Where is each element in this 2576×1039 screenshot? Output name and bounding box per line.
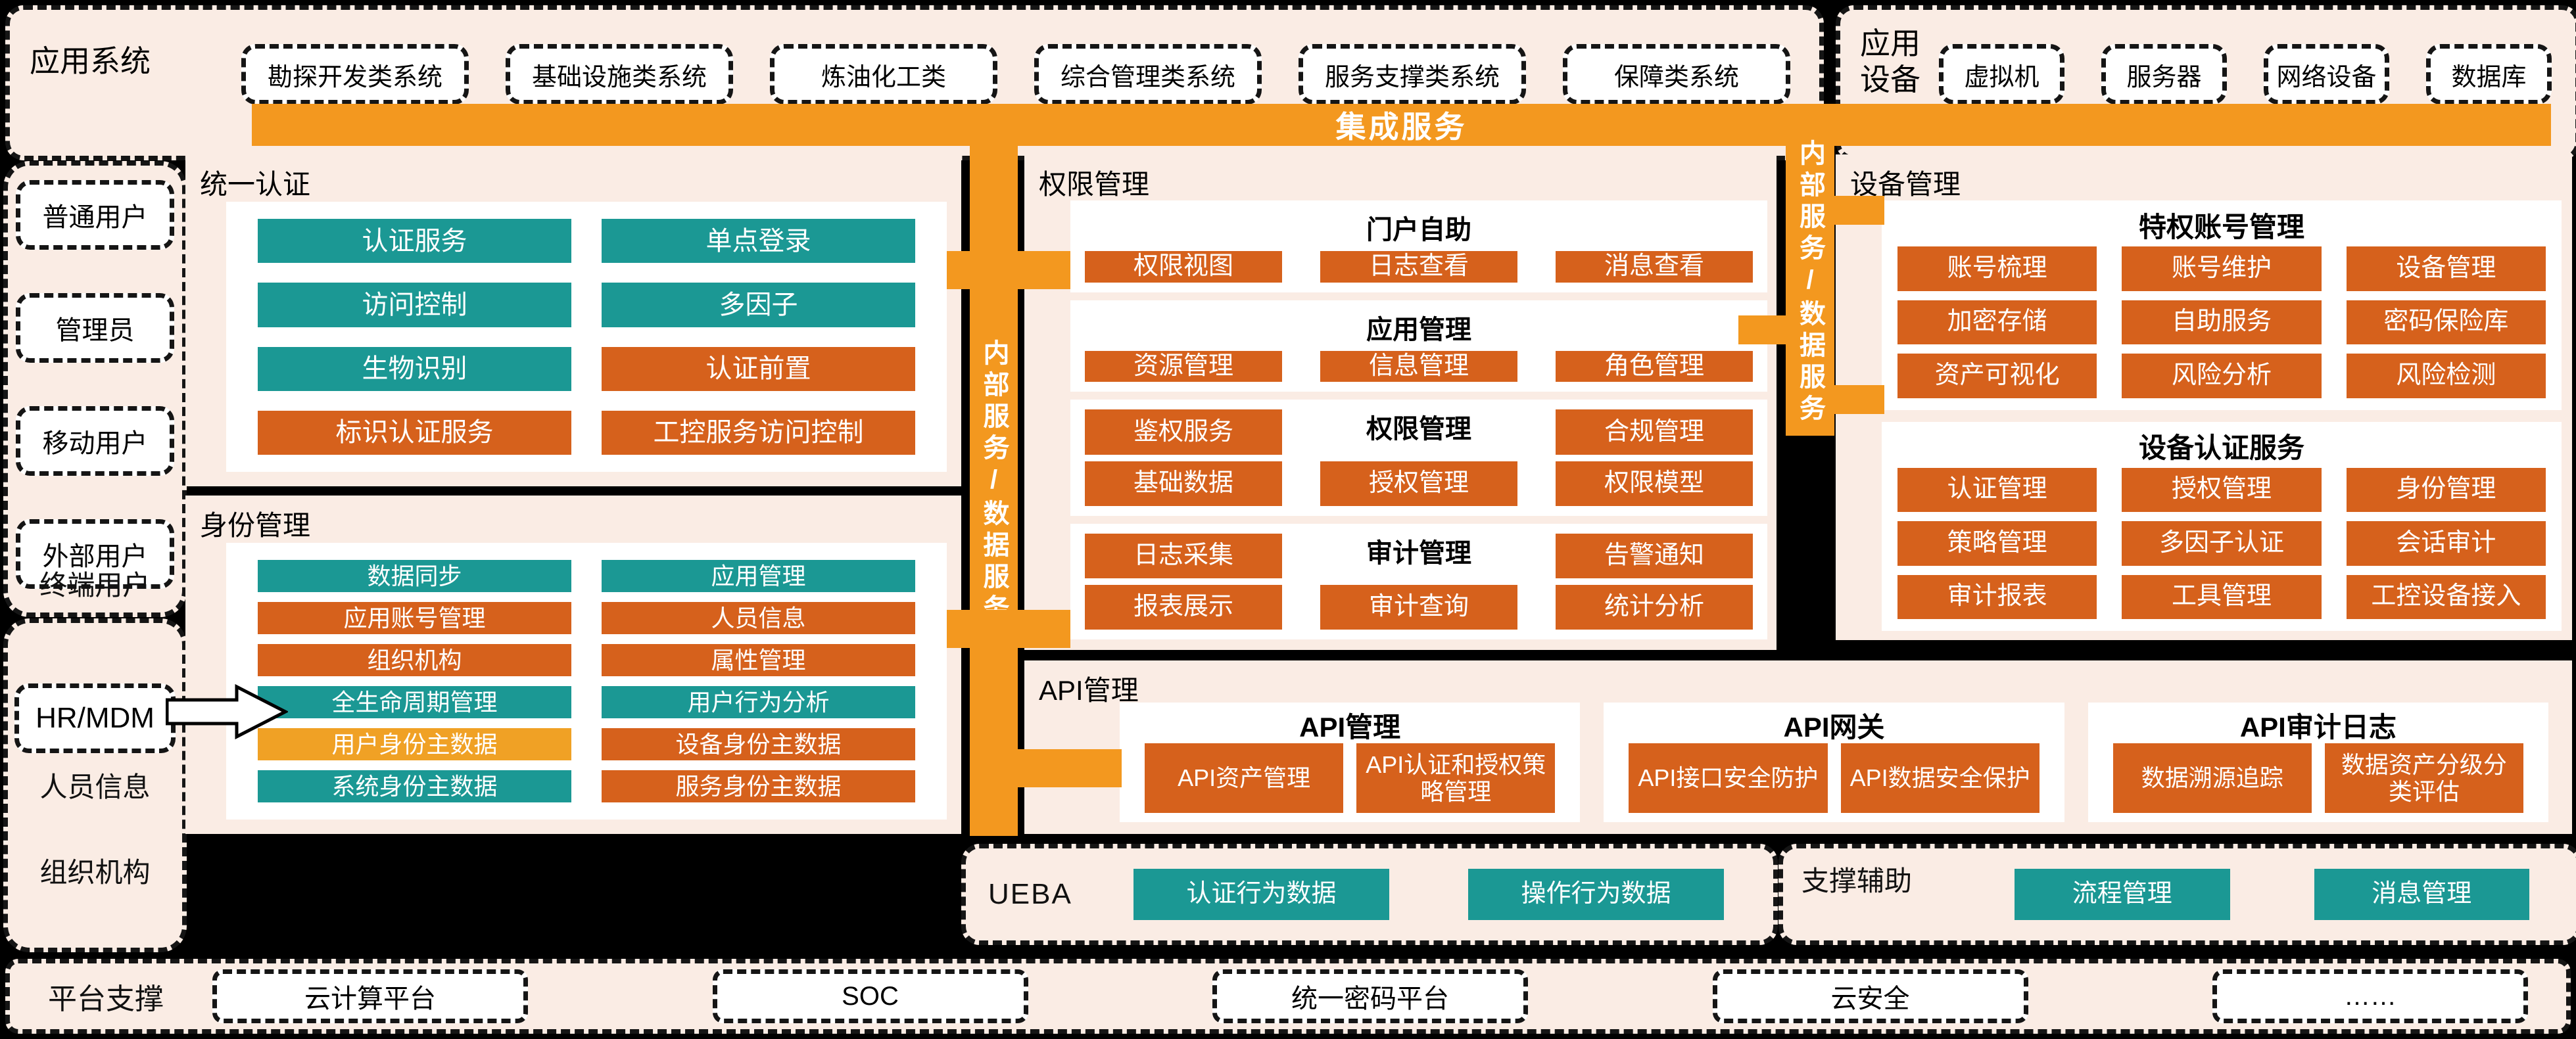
api-button: 数据溯源追踪 [2113,743,2312,813]
permission-button-row: 报表展示审计查询统计分析 [1085,582,1753,633]
api-button: API数据安全保护 [1841,743,2039,813]
permission-button: 告警通知 [1556,534,1753,578]
permission-panel-title-row: 应用管理 [1085,307,1753,348]
app-system-box: 基础设施类系统 [506,44,733,104]
permission-button-row: 资源管理信息管理角色管理 [1085,348,1753,386]
permission-button: 日志采集 [1085,534,1282,578]
internal-services-bar-right: 内部服务/数据服务 [1786,129,1834,436]
api-button: API接口安全防护 [1629,743,1827,813]
identity-button: 应用账号管理 [258,602,571,634]
identity-button: 应用管理 [602,560,915,592]
panel-title: 权限管理 [1320,409,1517,444]
identity-button: 组织机构 [258,644,571,676]
identity-button: 用户身份主数据 [258,728,571,760]
connector-api [1018,749,1122,787]
ueba-buttons: 认证行为数据操作行为数据 [1133,869,1724,920]
api-button: API资产管理 [1145,743,1343,813]
platform-box: 云安全 [1713,969,2028,1023]
platform-box: 统一密码平台 [1212,969,1528,1023]
app-devices-label: 应用设备 [1860,26,1939,98]
app-system-box: 综合管理类系统 [1034,44,1262,104]
section-ueba-title: UEBA [988,848,1072,940]
app-device-box: 虚拟机 [1939,44,2064,104]
identity-panel: 数据同步应用管理应用账号管理人员信息组织机构属性管理全生命周期管理用户行为分析用… [226,543,947,820]
support-aux-button: 消息管理 [2314,869,2530,920]
hr-mdm-group: HR/MDM 人员信息 组织机构 [3,618,187,952]
device-button: 授权管理 [2122,468,2321,513]
permission-button: 统计分析 [1556,585,1753,630]
identity-button: 人员信息 [602,602,915,634]
unified-auth-button: 多因子 [602,283,915,327]
device-button: 身份管理 [2347,468,2546,513]
api-panel: API审计日志数据溯源追踪数据资产分级分类评估 [2088,703,2548,822]
permission-panel: 鉴权服务权限管理合规管理基础数据授权管理权限模型 [1070,400,1767,515]
identity-button: 服务身份主数据 [602,770,915,802]
permission-button-row: 鉴权服务权限管理合规管理 [1085,406,1753,457]
permission-panels: 门户自助权限视图日志查看消息查看应用管理资源管理信息管理角色管理鉴权服务权限管理… [1070,200,1767,639]
identity-button: 数据同步 [258,560,571,592]
platform-box: 云计算平台 [212,969,528,1023]
identity-button: 设备身份主数据 [602,728,915,760]
permission-button: 审计查询 [1320,585,1517,630]
permission-button: 消息查看 [1556,251,1753,283]
identity-button: 全生命周期管理 [258,686,571,718]
app-device-box: 服务器 [2101,44,2227,104]
api-panel: API管理API资产管理API认证和授权策略管理 [1120,703,1580,822]
permission-panel: 应用管理资源管理信息管理角色管理 [1070,300,1767,392]
permission-button: 日志查看 [1320,251,1517,283]
section-permission: 权限管理 门户自助权限视图日志查看消息查看应用管理资源管理信息管理角色管理鉴权服… [1024,154,1777,650]
unified-auth-button: 认证前置 [602,347,915,391]
device-button: 工控设备接入 [2347,575,2546,620]
panel-title: 审计管理 [1320,534,1517,568]
app-system-box: 炼油化工类 [770,44,997,104]
internal-services-bar-left-label: 内部服务/数据服务 [981,339,1007,626]
connector-auth-permission [947,251,1070,289]
api-button: 数据资产分级分类评估 [2325,743,2523,813]
identity-button: 用户行为分析 [602,686,915,718]
section-support-aux: 支撑辅助 流程管理消息管理 [1778,844,2576,945]
permission-panel: 日志采集审计管理告警通知报表展示审计查询统计分析 [1070,524,1767,639]
api-button-row: API资产管理API认证和授权策略管理 [1145,743,1555,813]
permission-button: 信息管理 [1320,351,1517,382]
device-button: 账号梳理 [1897,246,2097,291]
api-button: API认证和授权策略管理 [1356,743,1555,813]
section-identity-title: 身份管理 [200,503,310,543]
panel-title: API审计日志 [2113,706,2523,743]
api-button-row: 数据溯源追踪数据资产分级分类评估 [2113,743,2523,813]
iam-architecture-diagram: 应用系统 勘探开发类系统基础设施类系统炼油化工类综合管理类系统服务支撑类系统保障… [0,0,2576,1039]
permission-panel-title-row: 门户自助 [1085,207,1753,248]
device-button: 密码保险库 [2347,300,2546,345]
terminal-users-items: 普通用户管理员移动用户外部用户 [16,180,174,589]
device-button: 账号维护 [2122,246,2321,291]
connector-permission-right [1738,315,1786,344]
device-button: 设备管理 [2347,246,2546,291]
permission-button: 鉴权服务 [1085,409,1282,454]
connector-device-top [1834,196,1884,225]
panel-title: 应用管理 [1320,310,1517,344]
unified-auth-button: 生物识别 [258,347,571,391]
panel-title: 特权账号管理 [1897,206,2546,244]
device-button: 策略管理 [1897,521,2097,566]
spacer [1085,310,1282,344]
unified-auth-panel: 认证服务单点登录访问控制多因子生物识别认证前置标识认证服务工控服务访问控制 [226,202,947,472]
section-unified-auth-title: 统一认证 [200,162,310,202]
terminal-user-box: 普通用户 [16,180,174,250]
permission-button: 角色管理 [1556,351,1753,382]
section-ueba: UEBA 认证行为数据操作行为数据 [961,844,1778,945]
device-button: 自助服务 [2122,300,2321,345]
permission-button: 权限模型 [1556,461,1753,506]
spacer [1556,210,1753,244]
unified-auth-button: 工控服务访问控制 [602,411,915,455]
identity-button: 属性管理 [602,644,915,676]
unified-auth-button: 访问控制 [258,283,571,327]
internal-services-bar-right-label: 内部服务/数据服务 [1797,139,1823,426]
terminal-users-label: 终端用户 [8,563,182,603]
unified-auth-button: 认证服务 [258,219,571,263]
api-button-row: API接口安全防护API数据安全保护 [1629,743,2039,813]
identity-button: 系统身份主数据 [258,770,571,802]
hr-mdm-box: HR/MDM [14,683,176,753]
permission-panel: 门户自助权限视图日志查看消息查看 [1070,200,1767,292]
unified-auth-button: 标识认证服务 [258,411,571,455]
panel-title: API网关 [1629,706,2039,743]
device-button: 风险分析 [2122,354,2321,398]
section-permission-title: 权限管理 [1039,162,1149,202]
terminal-users-group: 普通用户管理员移动用户外部用户 终端用户 [3,161,187,617]
device-button: 资产可视化 [1897,354,2097,398]
app-device-box: 数据库 [2426,44,2552,104]
api-panels: API管理API资产管理API认证和授权策略管理API网关API接口安全防护AP… [1120,703,2548,822]
platform-box: …… [2212,969,2528,1023]
support-aux-button: 流程管理 [2015,869,2230,920]
panel-title: 门户自助 [1320,210,1517,244]
permission-button: 权限视图 [1085,251,1282,283]
app-system-box: 勘探开发类系统 [241,44,469,104]
section-identity: 身份管理 数据同步应用管理应用账号管理人员信息组织机构属性管理全生命周期管理用户… [185,496,961,834]
permission-button-row: 权限视图日志查看消息查看 [1085,248,1753,286]
device-button: 认证管理 [1897,468,2097,513]
integration-services-bar: 集成服务 [252,104,2551,146]
app-device-box: 网络设备 [2264,44,2389,104]
permission-button-row: 日志采集审计管理告警通知 [1085,530,1753,582]
api-panel: API网关API接口安全防护API数据安全保护 [1604,703,2064,822]
ueba-button: 认证行为数据 [1133,869,1389,920]
connector-device-bottom [1834,385,1884,414]
permission-button: 授权管理 [1320,461,1517,506]
app-systems-label: 应用系统 [30,10,151,108]
device-button: 风险检测 [2347,354,2546,398]
device-button: 审计报表 [1897,575,2097,620]
arrow-right-icon [166,684,288,739]
app-system-box: 服务支撑类系统 [1299,44,1526,104]
app-system-box: 保障类系统 [1563,44,1790,104]
permission-button: 基础数据 [1085,461,1282,506]
platform-support-band: 平台支撑 云计算平台SOC统一密码平台云安全…… [5,959,2571,1034]
spacer [1556,310,1753,344]
organization-label: 组织机构 [8,850,182,890]
device-panel: 特权账号管理账号梳理账号维护设备管理加密存储自助服务密码保险库资产可视化风险分析… [1882,200,2562,410]
platform-support-boxes: 云计算平台SOC统一密码平台云安全…… [212,969,2528,1023]
section-support-aux-title: 支撑辅助 [1801,859,1912,899]
terminal-user-box: 管理员 [16,293,174,363]
panel-title: 设备认证服务 [1897,427,2546,465]
section-unified-auth: 统一认证 认证服务单点登录访问控制多因子生物识别认证前置标识认证服务工控服务访问… [185,154,961,486]
spacer [1085,210,1282,244]
connector-identity-permission [947,610,1070,648]
device-button: 工具管理 [2122,575,2321,620]
section-api: API管理 API管理API资产管理API认证和授权策略管理API网关API接口… [1024,660,2572,834]
platform-box: SOC [713,969,1028,1023]
internal-services-bar-left: 内部服务/数据服务 [970,129,1018,836]
device-panel: 设备认证服务认证管理授权管理身份管理策略管理多因子认证会话审计审计报表工具管理工… [1882,422,2562,632]
panel-title: API管理 [1145,706,1555,743]
support-aux-buttons: 流程管理消息管理 [2015,869,2529,920]
personnel-info-label: 人员信息 [8,765,182,805]
section-device: 设备管理 特权账号管理账号梳理账号维护设备管理加密存储自助服务密码保险库资产可视… [1836,154,2572,640]
device-button: 加密存储 [1897,300,2097,345]
device-button: 会话审计 [2347,521,2546,566]
device-button: 多因子认证 [2122,521,2321,566]
permission-button-row: 基础数据授权管理权限模型 [1085,458,1753,509]
permission-button: 资源管理 [1085,351,1282,382]
permission-button: 合规管理 [1556,409,1753,454]
device-button-grid: 认证管理授权管理身份管理策略管理多因子认证会话审计审计报表工具管理工控设备接入 [1897,465,2546,626]
platform-support-label: 平台支撑 [48,975,212,1017]
terminal-user-box: 移动用户 [16,406,174,476]
device-panels: 特权账号管理账号梳理账号维护设备管理加密存储自助服务密码保险库资产可视化风险分析… [1882,200,2562,631]
app-systems-boxes: 勘探开发类系统基础设施类系统炼油化工类综合管理类系统服务支撑类系统保障类系统 [241,44,1790,104]
unified-auth-button: 单点登录 [602,219,915,263]
permission-button: 报表展示 [1085,585,1282,630]
device-button-grid: 账号梳理账号维护设备管理加密存储自助服务密码保险库资产可视化风险分析风险检测 [1897,244,2546,405]
app-devices-boxes: 虚拟机服务器网络设备数据库 [1939,44,2552,104]
ueba-button: 操作行为数据 [1468,869,1724,920]
